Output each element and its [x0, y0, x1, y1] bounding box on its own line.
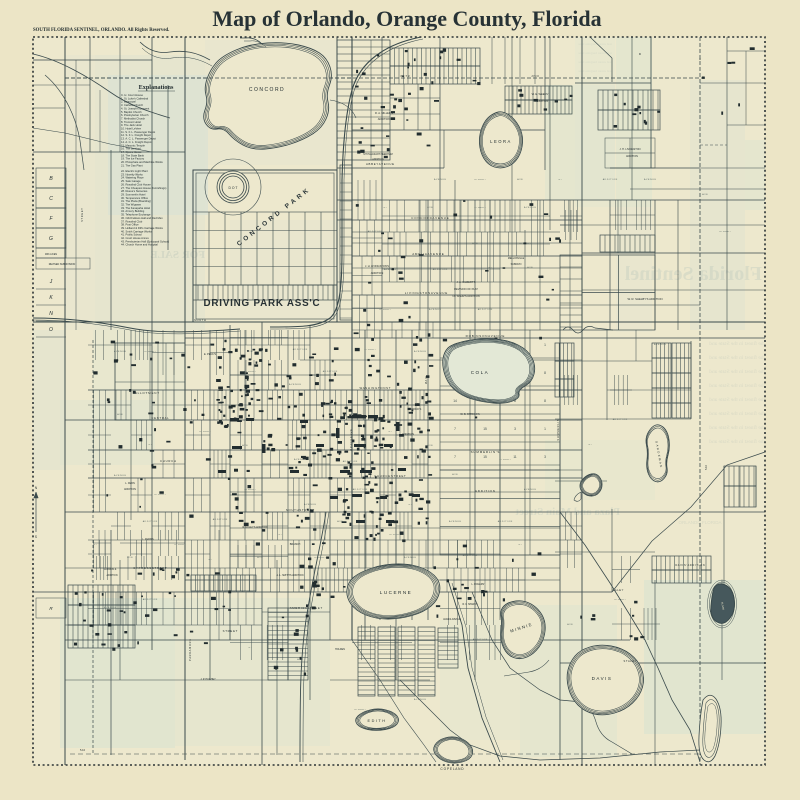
svg-text:S T R E E T: S T R E E T — [614, 599, 626, 601]
svg-text:L. FERN'S: L. FERN'S — [142, 538, 154, 541]
svg-text:A D D I T I O N: A D D I T I O N — [323, 370, 338, 373]
svg-text:15: 15 — [483, 455, 487, 459]
svg-text:J. P. HUGHEY: J. P. HUGHEY — [200, 678, 216, 681]
svg-text:OF SPEIR'S ADDITION: OF SPEIR'S ADDITION — [452, 294, 479, 298]
svg-text:S T R E E T: S T R E E T — [223, 629, 238, 633]
svg-text:the finest in the State and: the finest in the State and — [709, 438, 765, 445]
svg-text:HOLDEN: HOLDEN — [335, 648, 345, 651]
svg-text:K A L E Y: K A L E Y — [613, 588, 624, 592]
svg-text:S T A L E Y: S T A L E Y — [623, 659, 636, 663]
svg-text:J. A. GILBERT'S: J. A. GILBERT'S — [456, 280, 475, 284]
svg-text:7: 7 — [454, 455, 456, 459]
svg-text:the finest in the State and: the finest in the State and — [709, 354, 765, 361]
svg-text:A V E N U E: A V E N U E — [524, 206, 536, 209]
svg-text:GORDON &: GORDON & — [104, 569, 117, 571]
svg-text:48th LIKES: 48th LIKES — [45, 253, 57, 256]
svg-text:L. ROGERS': L. ROGERS' — [472, 584, 486, 586]
svg-text:ADDITION: ADDITION — [371, 271, 384, 275]
svg-text:real estate bargains here: real estate bargains here — [578, 69, 612, 73]
svg-text:S T R E E T: S T R E E T — [80, 208, 84, 222]
svg-text:A D D I T I O N: A D D I T I O N — [473, 638, 488, 641]
svg-text:ADDITION: ADDITION — [536, 99, 549, 103]
svg-text:1: 1 — [544, 343, 546, 347]
svg-text:A D D I T I O N: A D D I T I O N — [368, 230, 383, 233]
svg-text:A V E N U E: A V E N U E — [414, 698, 426, 701]
svg-text:MELLONVILLE: MELLONVILLE — [508, 257, 525, 260]
svg-text:S O U T H: S O U T H — [194, 318, 206, 322]
svg-text:ADDITION: ADDITION — [402, 433, 414, 436]
svg-text:A V E: A V E — [427, 444, 433, 447]
svg-text:SOUTH FLORIDA SENTINEL, ORLAND: SOUTH FLORIDA SENTINEL, ORLANDO. All Rig… — [33, 28, 169, 33]
svg-text:S T R E E T: S T R E E T — [364, 349, 376, 351]
svg-text:the finest in the State and: the finest in the State and — [709, 424, 765, 431]
svg-text:A D D I T I O N: A D D I T I O N — [433, 268, 448, 271]
svg-text:S T R E E T: S T R E E T — [499, 459, 511, 461]
svg-text:S T R E E T: S T R E E T — [199, 431, 211, 433]
svg-text:D A V I S ' A D D I T I O: D A V I S ' A D D I T I O N — [675, 563, 704, 567]
svg-text:P A R R A M O R E: P A R R A M O R E — [188, 639, 192, 661]
svg-text:A D D I T I O N: A D D I T I O N — [475, 489, 495, 493]
svg-text:3: 3 — [514, 427, 516, 431]
svg-text:A D D I T I O N: A D D I T I O N — [143, 598, 158, 601]
svg-text:S T R E E T: S T R E E T — [389, 534, 401, 536]
svg-text:S T R E E T: S T R E E T — [244, 489, 256, 491]
svg-text:R. FOLEY'S ADDITION: R. FOLEY'S ADDITION — [243, 526, 268, 529]
svg-text:A: A — [699, 57, 701, 61]
svg-text:S T R E E T: S T R E E T — [144, 351, 156, 353]
svg-text:Map of Orlando, Orange County,: Map of Orlando, Orange County, Florida — [212, 6, 601, 31]
svg-text:EDITH: EDITH — [368, 719, 387, 723]
svg-text:A V E N U E: A V E N U E — [404, 556, 416, 559]
svg-text:real estate bargains here: real estate bargains here — [578, 60, 612, 64]
svg-text:A V E N U E: A V E N U E — [114, 350, 126, 353]
svg-text:A V E: A V E — [517, 178, 523, 181]
svg-text:O R A N G E A V E: O R A N G E A V E — [349, 429, 353, 451]
svg-text:ADDITION: ADDITION — [372, 158, 384, 161]
svg-text:the finest in the State and: the finest in the State and — [709, 410, 765, 417]
svg-text:S T R E E T: S T R E E T — [379, 309, 391, 311]
svg-text:D O T: D O T — [229, 186, 238, 190]
svg-text:BRANCH: BRANCH — [290, 543, 301, 546]
svg-text:M A I N: M A I N — [424, 376, 428, 384]
svg-text:G: G — [49, 236, 53, 242]
svg-text:ADDITION: ADDITION — [626, 155, 638, 158]
svg-text:A D D I T I O N: A D D I T I O N — [213, 518, 228, 521]
svg-text:5.10: 5.10 — [704, 464, 708, 470]
svg-text:S T R E E T: S T R E E T — [314, 557, 326, 559]
svg-text:8: 8 — [544, 399, 546, 403]
svg-text:A V E: A V E — [427, 206, 433, 209]
svg-text:R. F. SPARKS: R. F. SPARKS — [462, 603, 478, 606]
svg-text:8: 8 — [544, 371, 546, 375]
svg-text:A V E: A V E — [257, 556, 263, 559]
svg-text:W. B. PATRICK'S: W. B. PATRICK'S — [460, 413, 480, 416]
svg-text:6 x 7 3: 6 x 7 3 — [400, 74, 409, 78]
svg-text:A D D I T I O N: A D D I T I O N — [293, 348, 308, 351]
svg-text:7: 7 — [454, 427, 456, 431]
svg-text:A V E N U E: A V E N U E — [114, 474, 126, 477]
svg-text:O: O — [49, 327, 53, 333]
svg-text:DRIVING PARK ASS'C: DRIVING PARK ASS'C — [204, 298, 321, 309]
svg-text:14: 14 — [453, 399, 457, 403]
svg-text:A V E N U E: A V E N U E — [414, 350, 426, 353]
svg-text:A V E N U E: A V E N U E — [434, 178, 446, 181]
svg-text:15: 15 — [483, 427, 487, 431]
svg-text:3: 3 — [544, 455, 546, 459]
svg-text:A D D I T I O N: A D D I T I O N — [143, 520, 158, 523]
svg-text:1: 1 — [544, 427, 546, 431]
svg-text:A. L. SMITH'S ADDITION: A. L. SMITH'S ADDITION — [276, 574, 303, 577]
svg-text:C O P E L A N D: C O P E L A N D — [440, 767, 464, 771]
svg-text:C H U R C H S T R E E T: C H U R C H S T R E E T — [374, 474, 406, 478]
svg-text:the finest in the State and: the finest in the State and — [709, 396, 765, 403]
svg-text:C: C — [49, 196, 53, 202]
svg-text:S T R E E T: S T R E E T — [354, 709, 366, 711]
svg-text:AGNES AVENUE: AGNES AVENUE — [443, 618, 461, 621]
svg-text:A V E N U E: A V E N U E — [384, 268, 396, 271]
svg-text:the finest in the State and: the finest in the State and — [709, 382, 765, 389]
svg-text:ADDITION: ADDITION — [107, 574, 118, 577]
svg-text:LEORA: LEORA — [490, 139, 512, 144]
svg-text:A V E N U E: A V E N U E — [429, 308, 441, 311]
svg-text:E. PECK'S: E. PECK'S — [204, 353, 216, 356]
svg-text:PATRICK'S: PATRICK'S — [409, 408, 422, 411]
svg-text:C O N C O R D A V E N U E: C O N C O R D A V E N U E — [411, 216, 449, 220]
svg-text:S: S — [35, 535, 37, 539]
svg-text:S T R E E T: S T R E E T — [154, 494, 166, 496]
svg-text:REVISION OF PLAT: REVISION OF PLAT — [454, 287, 478, 291]
svg-text:A D D I T I O N: A D D I T I O N — [343, 460, 358, 463]
svg-text:A V E: A V E — [242, 444, 248, 447]
svg-text:L I V I N G S T O N A V E N: L I V I N G S T O N A V E N U E — [405, 291, 447, 295]
svg-text:MT PLEASANT NEEDHAM: MT PLEASANT NEEDHAM — [363, 153, 392, 156]
svg-text:Explanations: Explanations — [139, 84, 174, 91]
svg-text:C H U R C H: C H U R C H — [160, 459, 176, 463]
svg-text:A V E N U E: A V E N U E — [654, 343, 666, 346]
svg-text:L. FERN: L. FERN — [125, 482, 135, 485]
svg-text:5.10: 5.10 — [80, 748, 86, 752]
svg-text:S U M M E R L I N ' S: S U M M E R L I N ' S — [471, 450, 500, 454]
svg-text:A M E R I C A S T R E E T: A M E R I C A S T R E E T — [290, 606, 323, 610]
svg-text:SUBDIVN: SUBDIVN — [511, 263, 522, 266]
svg-text:C E N T R A L: C E N T R A L — [151, 416, 169, 420]
svg-text:real estate bargains here: real estate bargains here — [578, 42, 612, 46]
svg-text:LUCERNE: LUCERNE — [380, 590, 412, 595]
svg-text:N: N — [49, 311, 53, 317]
svg-text:A V E N U E: A V E N U E — [304, 503, 316, 506]
svg-text:A V E: A V E — [472, 242, 478, 245]
svg-text:J. H. LIVINGSTON: J. H. LIVINGSTON — [620, 148, 641, 151]
svg-text:44. Church Home and Hospital: 44. Church Home and Hospital — [121, 243, 158, 247]
svg-text:Florida Sentinel: Florida Sentinel — [624, 263, 762, 285]
svg-text:A V E: A V E — [127, 556, 133, 559]
svg-text:S T R E E T: S T R E E T — [474, 207, 486, 209]
svg-text:the finest in the State and: the finest in the State and — [709, 340, 765, 347]
svg-text:A V E: A V E — [567, 623, 573, 626]
svg-text:11: 11 — [513, 455, 517, 459]
svg-text:A D D I T I O N: A D D I T I O N — [353, 488, 368, 491]
svg-text:A V E N U E: A V E N U E — [104, 606, 116, 609]
svg-text:R. A. MILLER'S: R. A. MILLER'S — [375, 111, 393, 115]
svg-text:COLA: COLA — [471, 370, 490, 375]
svg-text:S T R E E T: S T R E E T — [474, 179, 486, 181]
svg-text:A V E N U E: A V E N U E — [644, 178, 656, 181]
svg-text:A B B E Y A V E N U E: A B B E Y A V E N U E — [366, 162, 394, 166]
svg-text:A V E: A V E — [702, 193, 708, 196]
svg-text:J: J — [49, 279, 53, 285]
svg-text:A D D I T I O N: A D D I T I O N — [603, 178, 618, 181]
svg-text:FOR SALE: FOR SALE — [150, 249, 205, 261]
svg-text:the finest in the State and: the finest in the State and — [709, 368, 765, 375]
svg-text:A V E: A V E — [452, 473, 458, 476]
svg-text:J. H. LIVINGSTON'S: J. H. LIVINGSTON'S — [365, 264, 389, 268]
svg-text:21. The Gas Plant: 21. The Gas Plant — [121, 163, 143, 167]
svg-text:A V E: A V E — [527, 266, 533, 269]
svg-text:A D D I T I O N: A D D I T I O N — [613, 418, 628, 421]
svg-text:A V E: A V E — [117, 413, 123, 416]
svg-text:A V E N U E: A V E N U E — [449, 520, 461, 523]
svg-text:DAVIS: DAVIS — [592, 676, 613, 681]
svg-text:A D D I T I O N: A D D I T I O N — [478, 308, 493, 311]
svg-text:A M E L I A A V E N U E: A M E L I A A V E N U E — [412, 252, 444, 256]
svg-text:ADDITION: ADDITION — [378, 117, 391, 121]
svg-text:A V E N U E: A V E N U E — [289, 383, 301, 386]
svg-text:W. E. WEEKS': W. E. WEEKS' — [532, 92, 549, 96]
svg-text:REVISED SUBDIVISION: REVISED SUBDIVISION — [49, 263, 76, 266]
svg-text:A L L O T M E N T: A L L O T M E N T — [135, 391, 159, 395]
svg-text:W A S H I N G T O N S T: W A S H I N G T O N S T — [360, 386, 391, 390]
svg-text:CONCORD: CONCORD — [249, 87, 285, 93]
svg-text:S T R E E T: S T R E E T — [719, 231, 731, 233]
svg-text:ADDITION: ADDITION — [124, 488, 136, 491]
svg-text:S O U T H S T R E E T: S O U T H S T R E E T — [286, 508, 315, 512]
svg-text:C Y P R E S S S T R E E T: C Y P R E S S S T R E E T — [133, 566, 167, 570]
svg-text:W. R. SHELBY'S ADDITION: W. R. SHELBY'S ADDITION — [627, 297, 662, 301]
svg-text:J N O: J N O — [531, 74, 539, 78]
svg-text:S U M M E R L I N: S U M M E R L I N — [556, 419, 560, 440]
svg-text:R O B I N S O N A V E N U E: R O B I N S O N A V E N U E — [466, 334, 505, 338]
svg-text:S T R E E T: S T R E E T — [174, 544, 186, 546]
